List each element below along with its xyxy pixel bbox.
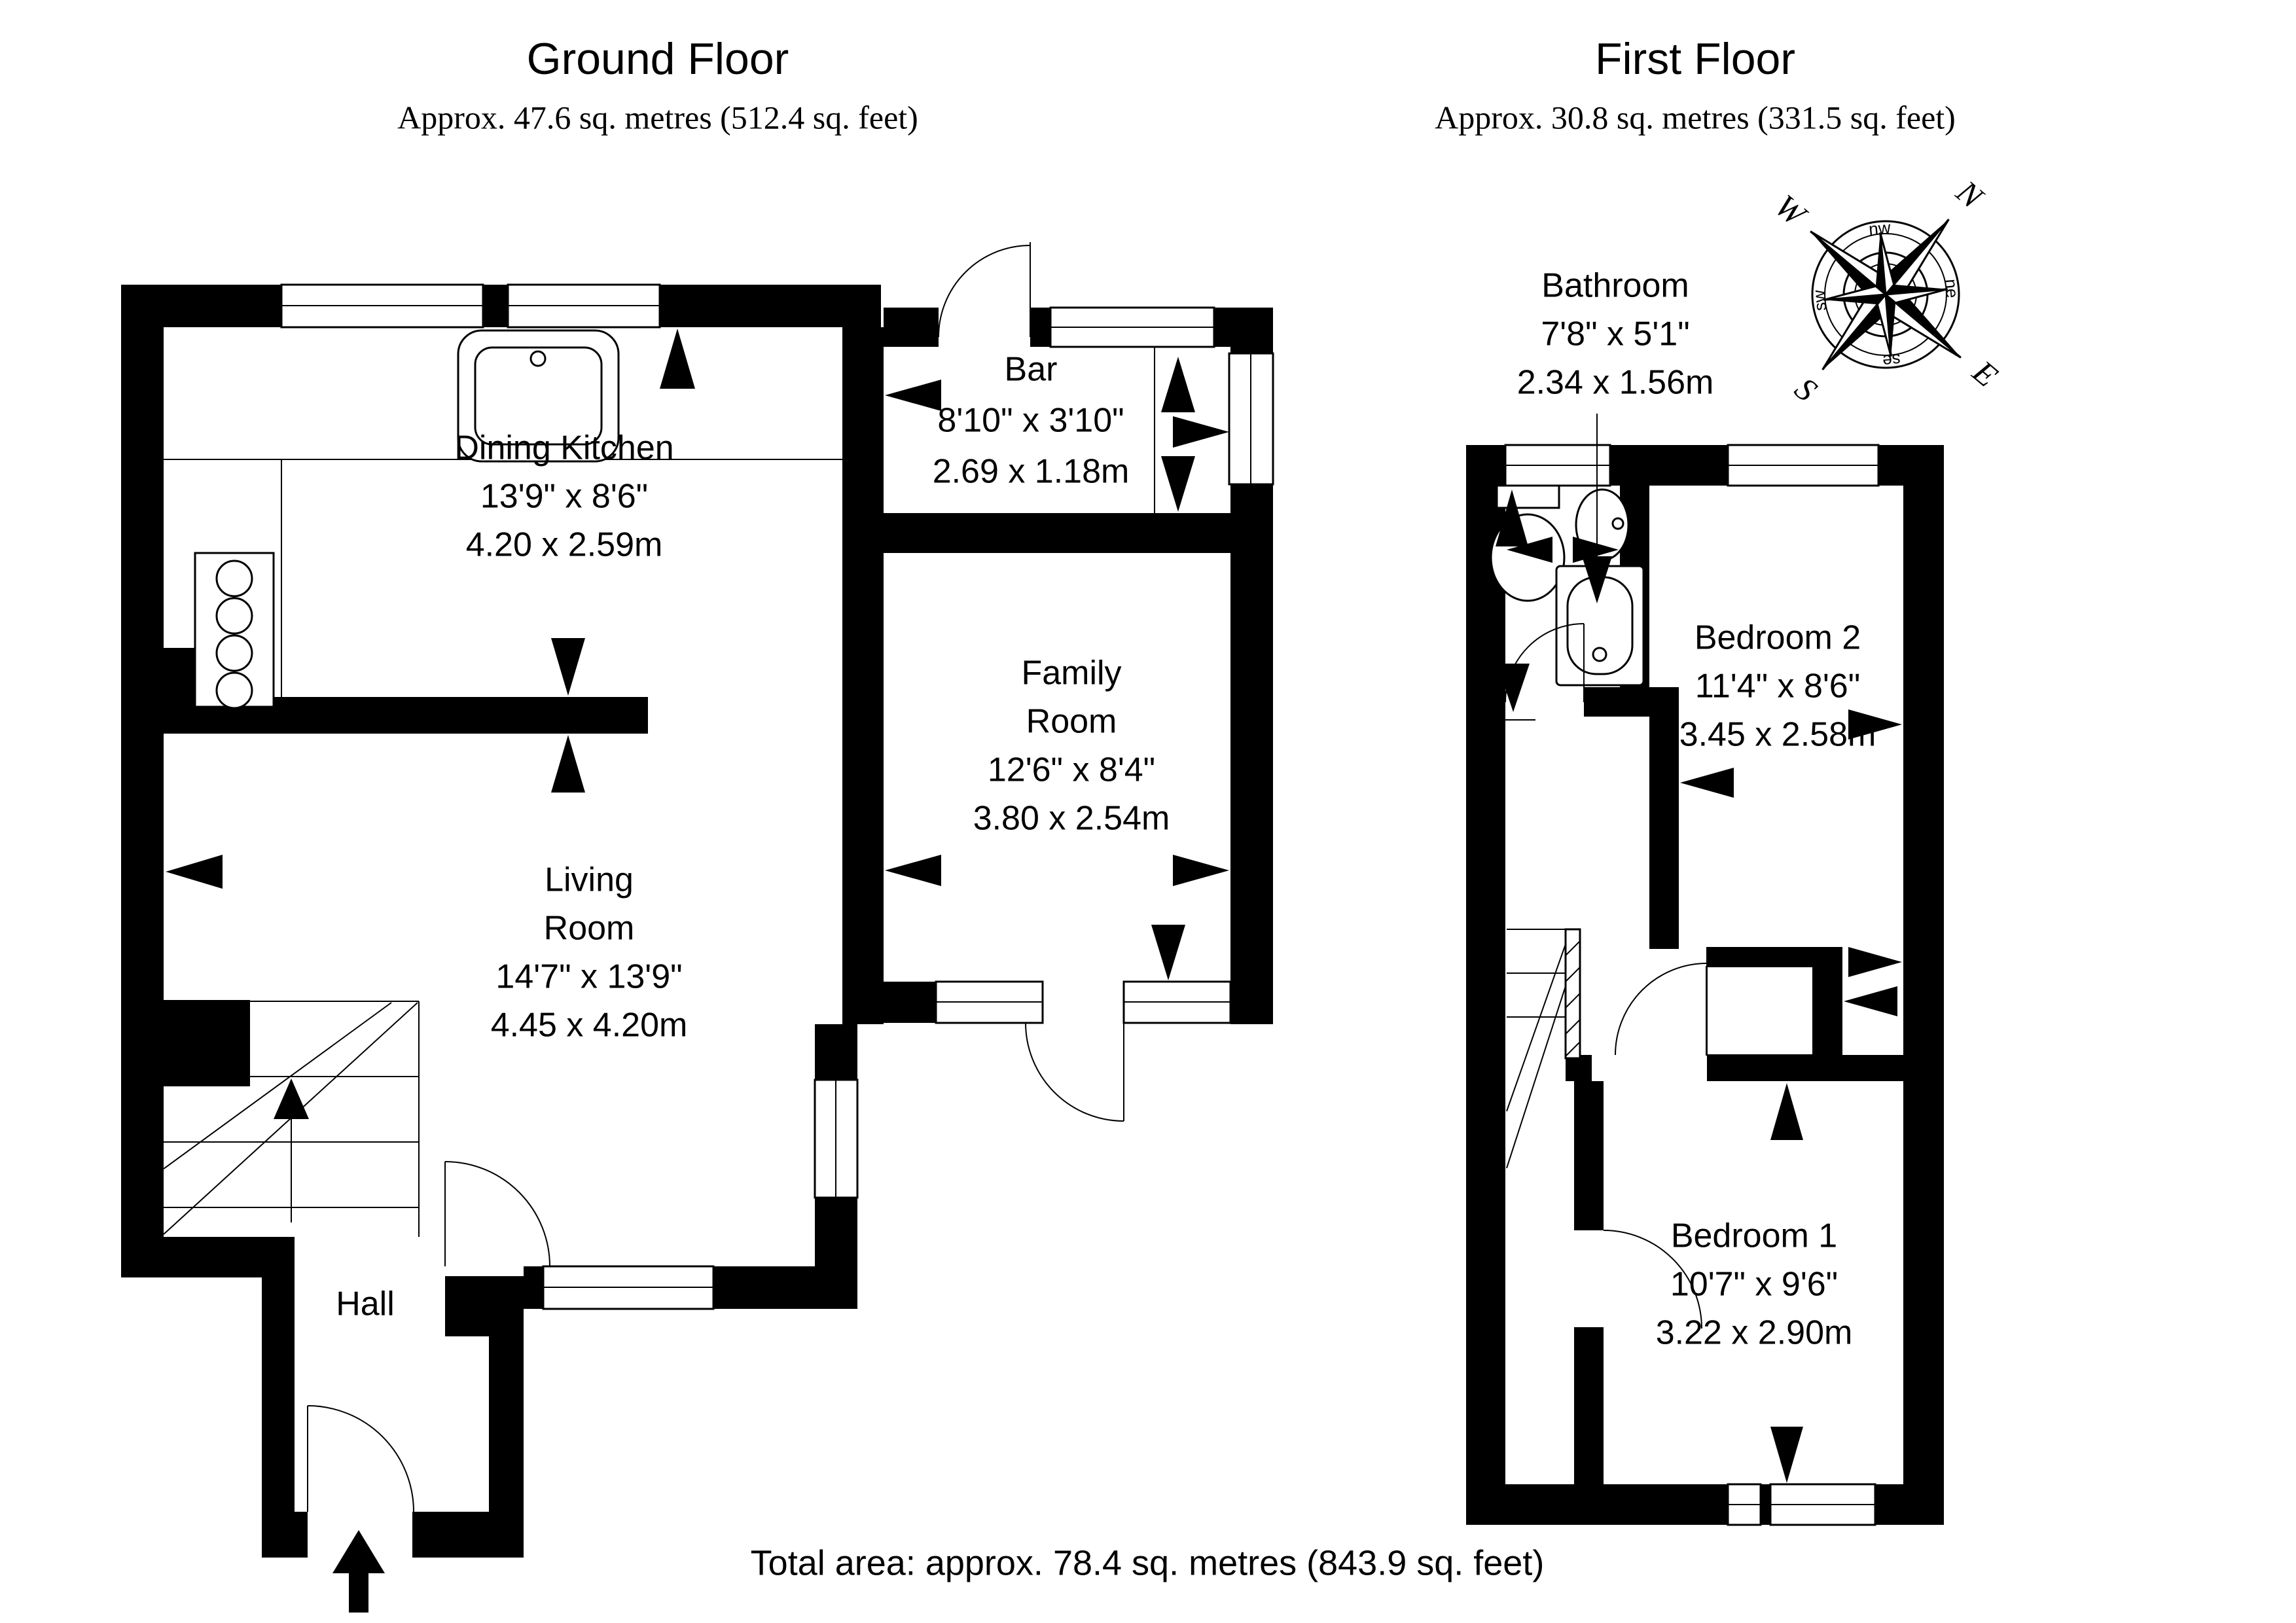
bedroom-1-metric: 3.22 x 2.90m <box>1656 1314 1853 1352</box>
dining-kitchen-imperial: 13'9" x 8'6" <box>480 478 648 516</box>
front-door <box>308 1406 414 1512</box>
window <box>1229 353 1273 484</box>
window <box>281 285 483 327</box>
window <box>1728 1484 1761 1525</box>
family-room-label-1: Family <box>1021 654 1121 692</box>
ground-floor-labels: Dining Kitchen 13'9" x 8'6" 4.20 x 2.59m… <box>336 351 1170 1323</box>
family-room-door <box>1026 1023 1124 1121</box>
living-room-label-2: Room <box>544 910 635 948</box>
ground-floor-area: Approx. 47.6 sq. metres (512.4 sq. feet) <box>397 99 918 135</box>
floorplan-page: Dining Kitchen 13'9" x 8'6" 4.20 x 2.59m… <box>0 0 2296 1623</box>
living-room-metric: 4.45 x 4.20m <box>491 1007 688 1044</box>
dining-kitchen-metric: 4.20 x 2.59m <box>466 526 663 564</box>
entrance-arrow-icon <box>332 1530 385 1613</box>
first-floor-title: First Floor <box>1595 34 1795 84</box>
kitchen-hob <box>195 553 274 708</box>
window <box>543 1266 713 1309</box>
bedroom-2-imperial: 11'4" x 8'6" <box>1695 668 1860 705</box>
hall-living-door <box>445 1162 550 1266</box>
compass-nw-label: nw <box>1868 217 1892 239</box>
floorplan-canvas: Dining Kitchen 13'9" x 8'6" 4.20 x 2.59m… <box>0 0 2296 1623</box>
ground-windows <box>281 285 1273 1309</box>
bathroom-metric: 2.34 x 1.56m <box>1517 364 1714 402</box>
window <box>815 1080 857 1198</box>
hall-label: Hall <box>336 1285 395 1323</box>
dining-kitchen-label: Dining Kitchen <box>454 429 673 467</box>
first-floor-labels: Bathroom 7'8" x 5'1" 2.34 x 1.56m Bedroo… <box>1517 267 1876 1352</box>
window <box>1728 445 1878 486</box>
family-room-label-2: Room <box>1026 703 1117 741</box>
bedroom-2-metric: 3.45 x 2.58m <box>1679 716 1876 754</box>
bar-imperial: 8'10" x 3'10" <box>937 402 1124 440</box>
living-room-label-1: Living <box>545 861 634 899</box>
cupboard <box>1706 967 1813 1055</box>
window <box>1050 308 1214 347</box>
first-floor-area: Approx. 30.8 sq. metres (331.5 sq. feet) <box>1435 99 1956 135</box>
ground-floor-title: Ground Floor <box>527 34 789 84</box>
compass-rose-icon: N E S W nw ne se sw <box>1768 173 2005 408</box>
family-room-metric: 3.80 x 2.54m <box>973 800 1170 838</box>
compass-sw-label: sw <box>1809 289 1831 312</box>
bar-label: Bar <box>1005 351 1058 389</box>
first-floor-plan: Bathroom 7'8" x 5'1" 2.34 x 1.56m Bedroo… <box>1466 267 1944 1525</box>
compass-se-label: se <box>1882 350 1901 371</box>
bathroom-imperial: 7'8" x 5'1" <box>1541 315 1689 353</box>
compass-north-label: N <box>1949 173 1991 217</box>
compass-east-label: E <box>1965 353 2005 394</box>
window <box>1124 982 1230 1023</box>
first-stairs <box>1507 929 1580 1168</box>
window <box>1505 445 1610 486</box>
bedroom-1-imperial: 10'7" x 9'6" <box>1670 1266 1838 1304</box>
living-room-imperial: 14'7" x 13'9" <box>495 958 682 996</box>
first-walls <box>1466 445 1944 1525</box>
total-area-line: Total area: approx. 78.4 sq. metres (843… <box>751 1543 1545 1582</box>
bedroom-2-door <box>1615 963 1707 1055</box>
bar-metric: 2.69 x 1.18m <box>933 453 1130 491</box>
window <box>936 982 1043 1023</box>
compass-ne-label: ne <box>1941 278 1962 298</box>
back-door <box>939 242 1030 337</box>
stairs-hatch <box>1566 929 1580 1058</box>
compass-south-label: S <box>1788 370 1824 408</box>
bedroom-2-label: Bedroom 2 <box>1695 619 1861 657</box>
bedroom-1-label: Bedroom 1 <box>1671 1217 1837 1255</box>
ground-floor-plan: Dining Kitchen 13'9" x 8'6" 4.20 x 2.59m… <box>121 242 1273 1613</box>
bathroom-label: Bathroom <box>1541 267 1689 305</box>
compass-west-label: W <box>1768 187 1815 234</box>
family-room-imperial: 12'6" x 8'4" <box>988 751 1155 789</box>
window <box>1770 1484 1875 1525</box>
window <box>508 285 660 327</box>
